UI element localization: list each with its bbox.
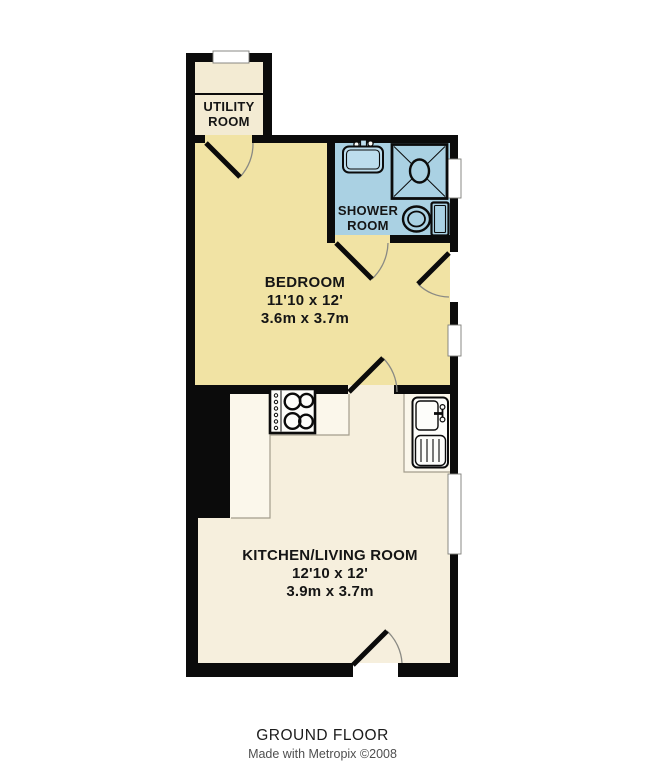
wall-utility-left xyxy=(186,53,195,143)
utility-room-label-line1: UTILITY xyxy=(186,99,272,114)
utility-room-label: UTILITY ROOM xyxy=(186,99,272,129)
bedroom-label: BEDROOM 11'10 x 12' 3.6m x 3.7m xyxy=(200,274,410,328)
plan-footer: GROUND FLOOR Made with Metropix ©2008 xyxy=(0,726,645,763)
kitchen-living-room-label: KITCHEN/LIVING ROOM 12'10 x 12' 3.9m x 3… xyxy=(210,547,450,601)
utility-window xyxy=(213,51,249,63)
bedroom-size-imperial: 11'10 x 12' xyxy=(200,292,410,310)
kitchen-tap-handle xyxy=(440,417,445,422)
shower-room-label-line1: SHOWER xyxy=(318,203,418,218)
bedroom-window xyxy=(448,325,461,356)
wall-left-main xyxy=(186,143,195,386)
shower-tray-icon xyxy=(392,145,447,199)
wall-utility-right xyxy=(263,53,272,143)
shower-room-label: SHOWER ROOM xyxy=(318,203,418,233)
wall-top-left-stub xyxy=(186,135,205,143)
metropix-credit: Made with Metropix ©2008 xyxy=(0,746,645,763)
floor-title: GROUND FLOOR xyxy=(0,726,645,745)
wall-kitchen-left xyxy=(186,518,198,677)
shower-drain xyxy=(410,160,429,183)
wall-shower-bottom-stub xyxy=(327,235,335,243)
bedroom-size-metric: 3.6m x 3.7m xyxy=(200,310,410,328)
kitchen-window xyxy=(448,474,461,554)
bedroom-name: BEDROOM xyxy=(200,274,410,292)
utility-door-threshold xyxy=(205,135,252,143)
wall-bedroom-kitchen-right xyxy=(394,385,458,394)
kitchen-sink-icon xyxy=(413,398,449,468)
floorplan-page: UTILITY ROOM SHOWER ROOM BEDROOM 11'10 x… xyxy=(0,0,645,767)
shower-room-label-line2: ROOM xyxy=(318,218,418,233)
shower-room-window xyxy=(448,159,461,198)
basin-tap-handle xyxy=(368,141,373,146)
kitchen-size-metric: 3.9m x 3.7m xyxy=(210,583,450,601)
kitchen-size-imperial: 12'10 x 12' xyxy=(210,565,450,583)
utility-worktop-divider xyxy=(195,93,263,95)
utility-room-label-line2: ROOM xyxy=(186,114,272,129)
stove-icon xyxy=(270,389,315,433)
wall-bottom-right xyxy=(398,663,458,677)
wall-solid-block xyxy=(186,385,230,518)
kitchen-living-room-name: KITCHEN/LIVING ROOM xyxy=(210,547,450,565)
wall-bottom-left xyxy=(186,663,353,677)
kitchen-tap-handle xyxy=(440,405,445,410)
floorplan-drawing xyxy=(0,0,645,767)
